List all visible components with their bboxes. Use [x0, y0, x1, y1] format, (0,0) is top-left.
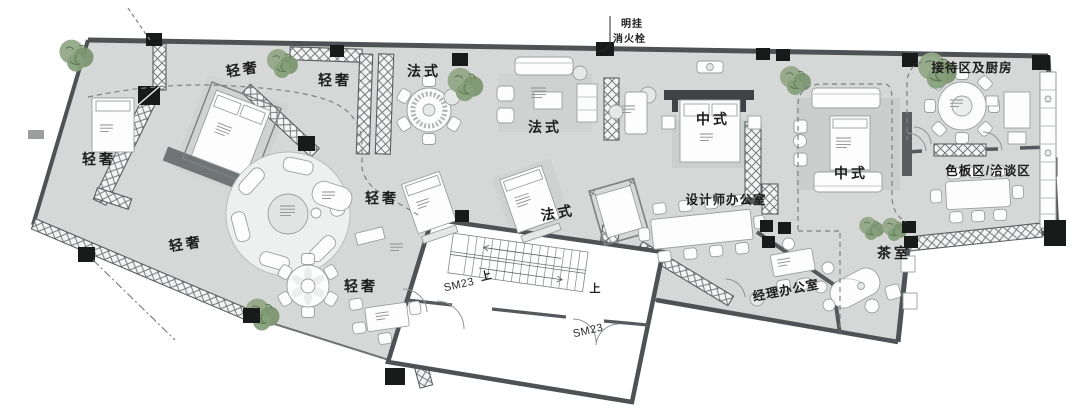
zone-label-zhongshi-a: 中式 — [696, 111, 730, 127]
kitchen-low-cabinet — [934, 144, 986, 156]
zone-label-qingshe-top-b: 轻奢 — [318, 72, 352, 88]
zone-label-fashi-living: 法式 — [528, 119, 562, 135]
circular-sofa — [226, 152, 350, 276]
rack-top-wall — [290, 47, 362, 63]
zone-label-reception-kitchen: 接待区及厨房 — [931, 60, 1012, 75]
zone-label-zhongshi-b: 中式 — [834, 165, 868, 181]
rack-top-left-vertical — [153, 44, 166, 90]
fire-hydrant-label: 消火栓 — [613, 32, 646, 45]
zone-label-qingshe-mid: 轻奢 — [365, 190, 399, 206]
zone-label-tea-room: 茶室 — [876, 245, 911, 261]
stair-up-label-b: 上 — [590, 281, 601, 295]
showroom-floor-plan: 明挂 消火栓 轻奢 轻奢 法式 法式 中式 接待区及厨房 轻奢 轻奢 法式 中式… — [0, 0, 1080, 412]
zone-label-designer-office: 设计师办公室 — [685, 192, 766, 207]
zone-label-seban-qiatan: 色板区/洽谈区 — [945, 163, 1030, 178]
zone-label-fashi-dining: 法式 — [407, 63, 441, 79]
bed-left — [92, 98, 134, 152]
zone-label-qingshe-bottom: 轻奢 — [344, 278, 378, 294]
hydrant-mount-label: 明挂 — [621, 17, 643, 30]
rack-zhongshi — [745, 122, 761, 198]
floor-plan-canvas: 明挂 消火栓 轻奢 轻奢 法式 法式 中式 接待区及厨房 轻奢 轻奢 法式 中式… — [0, 0, 1080, 412]
elevator-core — [138, 86, 160, 105]
zone-label-qingshe-left: 轻奢 — [82, 151, 116, 167]
wall-stub-left — [28, 130, 44, 139]
rack-double-truss — [375, 54, 393, 154]
